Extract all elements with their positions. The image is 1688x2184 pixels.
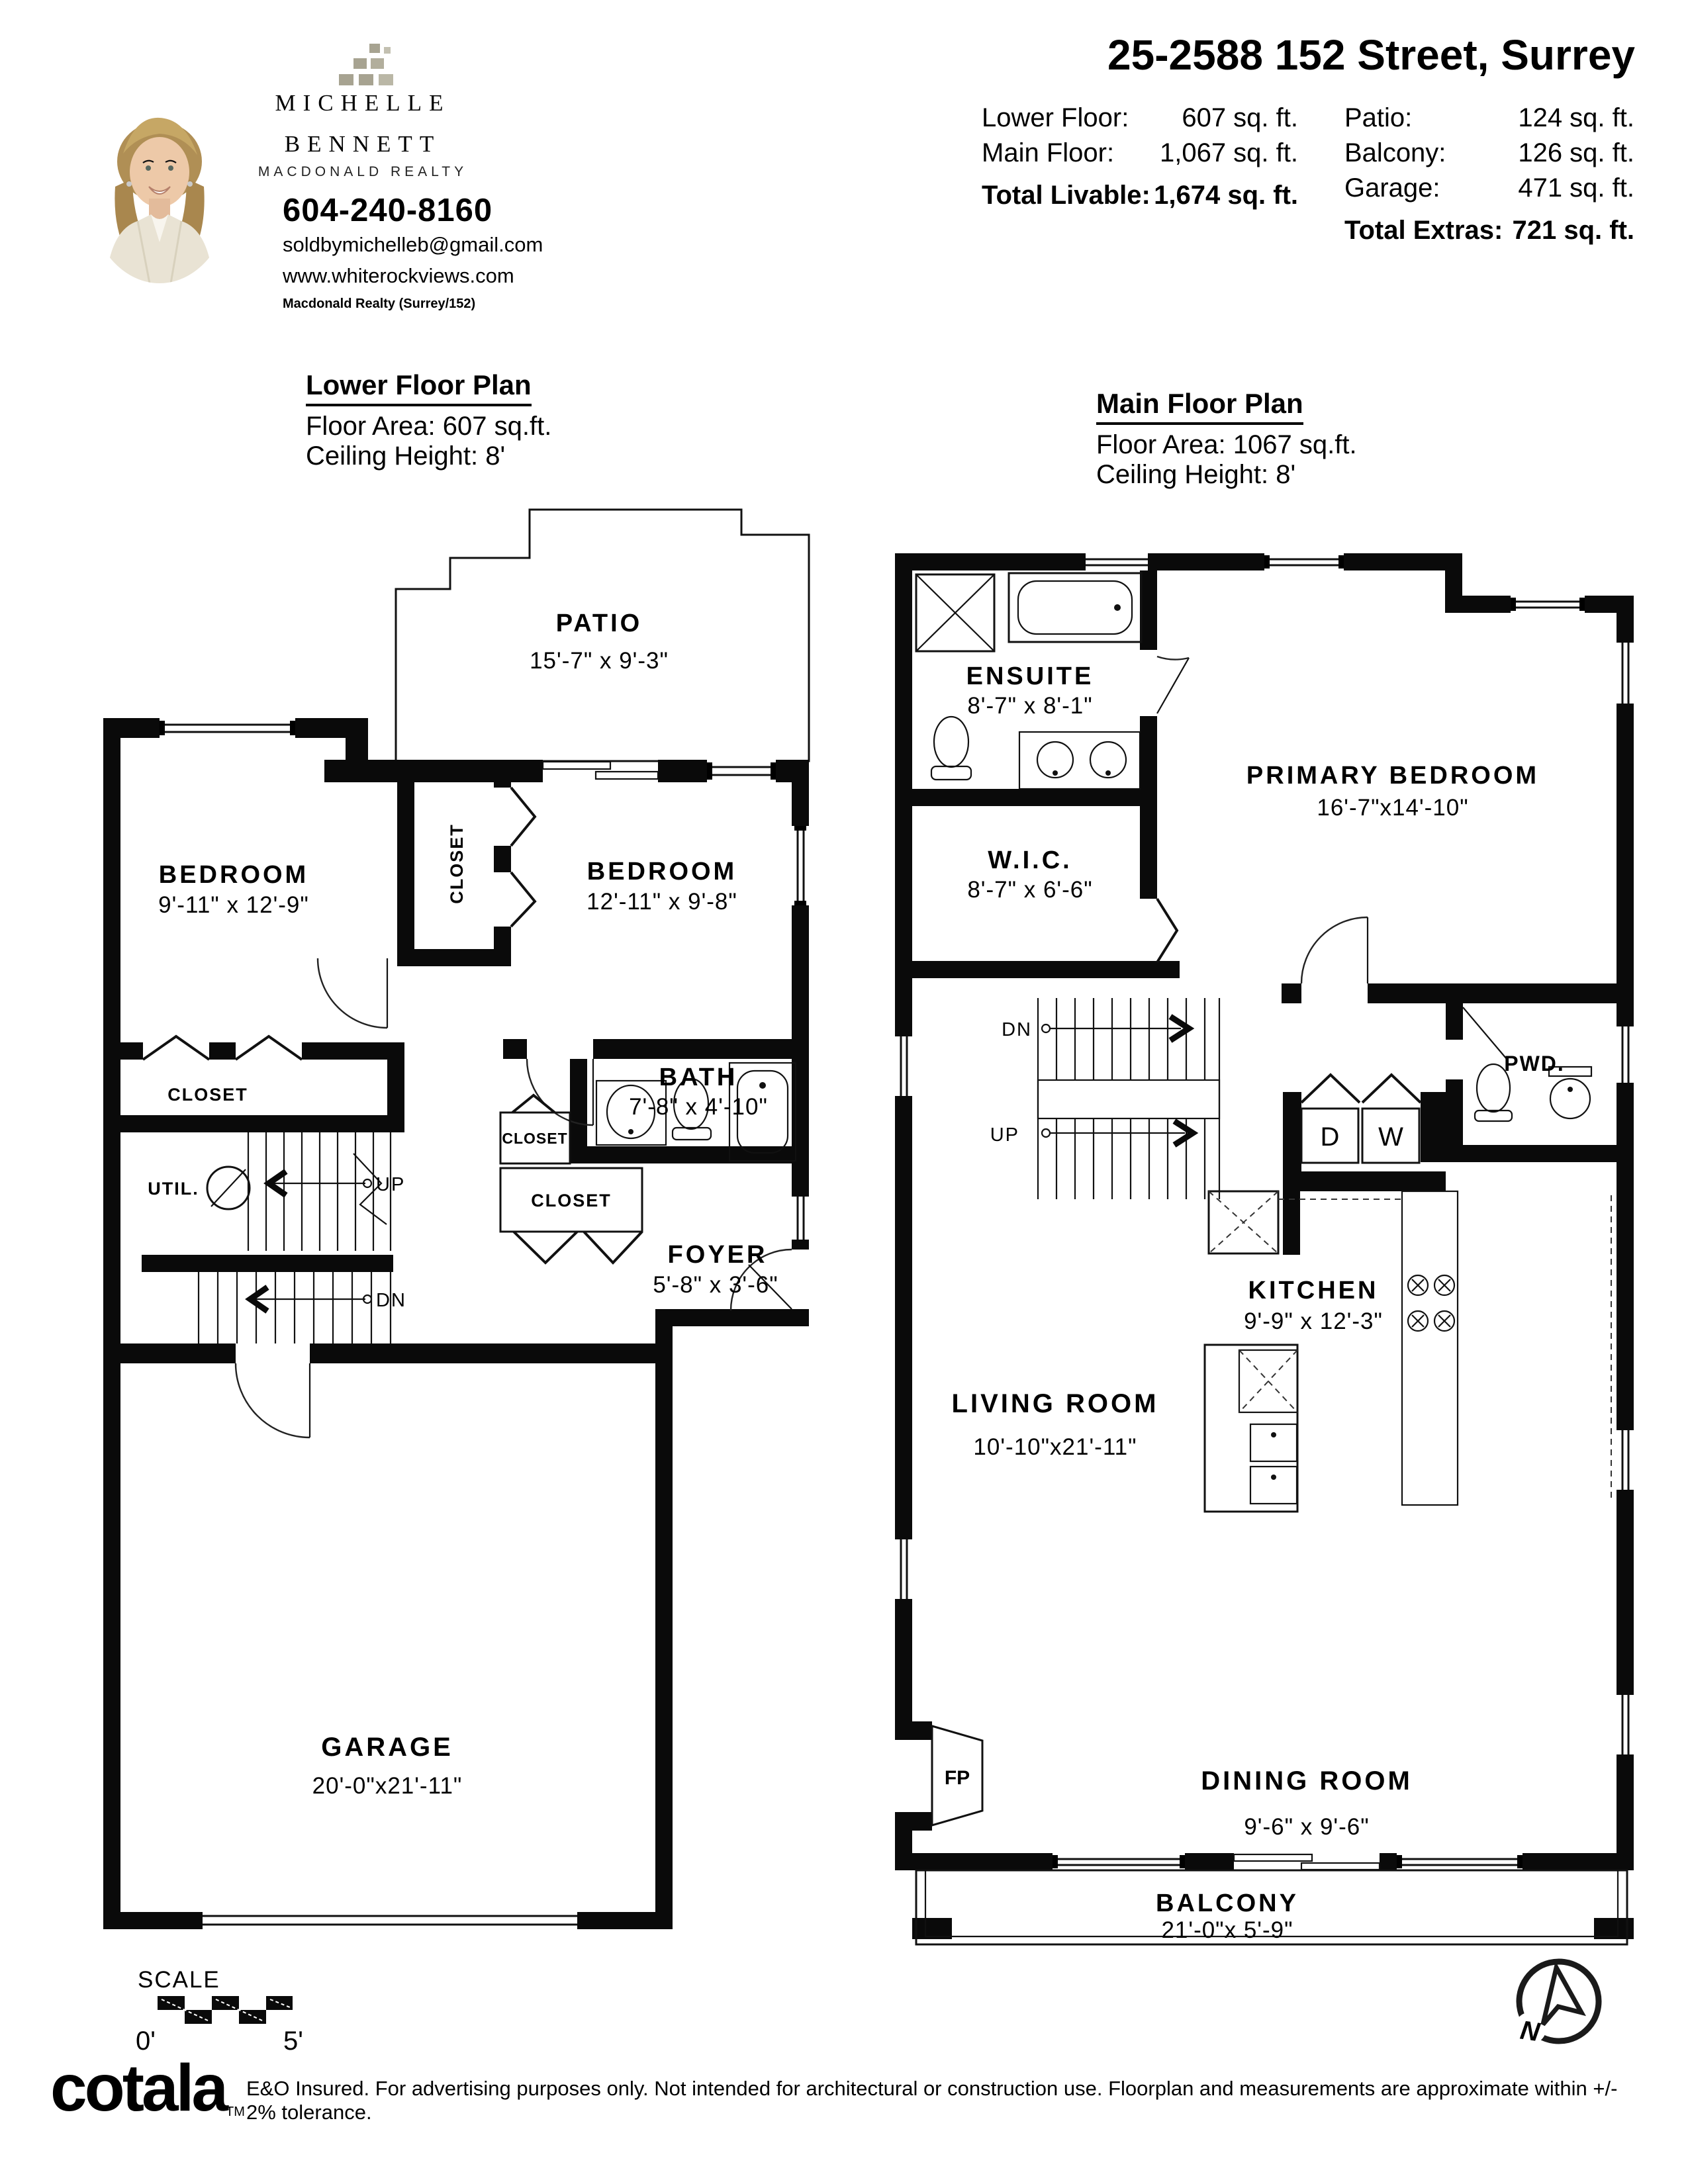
window [1617,1026,1634,1083]
main-plan-area: Floor Area: 1067 sq.ft. [1096,430,1357,460]
bifold-door-icon [236,1036,302,1060]
room-label-closet-wide: CLOSET [531,1191,612,1210]
closet-door-icon [1157,899,1177,962]
door-panel [1463,1007,1507,1059]
room-label-dining: DINING ROOM [1201,1766,1413,1796]
stat-row-total-livable: Total Livable: 1,674 sq. ft. [982,178,1298,213]
stats-livable: Lower Floor: 607 sq. ft. Main Floor: 1,0… [982,101,1298,213]
stat-label: Garage: [1344,171,1440,206]
room-dims-primary: 16'-7"x14'-10" [1317,795,1468,821]
room-label-wic: W.I.C. [988,846,1072,874]
bifold-door-icon [143,1036,209,1060]
room-label-closet-left: CLOSET [167,1085,248,1105]
room-label-bedroom-right: BEDROOM [587,858,737,886]
window [1086,553,1148,570]
garage-door-arc [236,1363,310,1437]
stat-row-patio: Patio: 124 sq. ft. [1344,101,1634,136]
stat-row-garage: Garage: 471 sq. ft. [1344,171,1634,206]
stat-label: Lower Floor: [982,101,1129,136]
room-dims-patio: 15'-7" x 9'-3" [530,648,669,674]
utility-fixture [207,1167,250,1209]
main-plan-heading: Main Floor Plan Floor Area: 1067 sq.ft. … [1096,388,1357,490]
fireplace: FP [932,1726,982,1825]
cotala-logo: cotalaTM [50,2050,245,2126]
door-arc [318,958,387,1028]
room-label-primary: PRIMARY BEDROOM [1246,762,1539,790]
main-plan-title: Main Floor Plan [1096,388,1303,425]
scale-five-label: 5' [283,2026,303,2056]
bifold-door-icon [1301,1075,1360,1103]
sink-icon [1550,1079,1590,1118]
agent-brokerage: MACDONALD REALTY [250,164,475,180]
closet-wide-box [500,1168,642,1263]
room-label-bedroom-left: BEDROOM [159,861,308,889]
lower-floor-plan-drawing: UP DN PAT [103,495,812,1931]
window [1617,643,1634,704]
door-arc [1301,917,1368,983]
floorplan-flyer: MICHELLE BENNETT MACDONALD REALTY 604-24… [0,0,1688,2184]
stat-row-lower-floor: Lower Floor: 607 sq. ft. [982,101,1298,136]
room-label-bath: BATH [659,1064,738,1091]
window [1397,1853,1523,1870]
room-dims-dining: 9'-6" x 9'-6" [1244,1814,1369,1840]
window [792,1197,809,1240]
room-dims-bath: 7'-8" x 4'-10" [629,1094,768,1120]
window [1511,596,1585,613]
room-label-util: UTIL. [148,1179,199,1199]
window [1617,1695,1634,1754]
agent-last-name: BENNETT [250,131,475,158]
agent-photo [97,87,222,283]
up-label: UP [990,1124,1019,1146]
room-label-ensuite: ENSUITE [966,662,1094,690]
room-label-patio: PATIO [556,610,642,637]
window [1053,1853,1185,1870]
sliding-door [1234,1854,1380,1870]
scale-bar [158,1996,293,2025]
room-dims-foyer: 5'-8" x 3'-6" [653,1272,778,1298]
room-label-balcony: BALCONY [1156,1889,1299,1917]
north-arrow-icon [1543,1967,1587,2030]
cotala-logo-tm: TM [226,2105,245,2119]
agent-phone: 604-240-8160 [283,192,492,229]
lower-plan-area: Floor Area: 607 sq.ft. [306,412,551,441]
room-label-kitchen: KITCHEN [1248,1277,1379,1304]
main-stairs: DN UP [990,998,1219,1199]
door-arc [1157,657,1189,659]
room-label-pwd: PWD. [1504,1052,1565,1075]
drawer [1250,1467,1297,1504]
up-label: UP [376,1174,405,1195]
stat-value: 471 sq. ft. [1518,171,1634,206]
stat-row-main-floor: Main Floor: 1,067 sq. ft. [982,136,1298,171]
main-plan-ceiling: Ceiling Height: 8' [1096,460,1357,490]
stat-label: Patio: [1344,101,1412,136]
stat-value: 1,674 sq. ft. [1154,178,1298,213]
room-label-living: LIVING ROOM [952,1389,1159,1418]
bifold-door-icon [511,872,535,927]
dn-label: DN [376,1290,406,1311]
stat-value: 721 sq. ft. [1512,213,1634,248]
stat-label: Total Livable: [982,178,1150,213]
window [895,1036,912,1096]
north-label: N [1519,2016,1542,2048]
stat-row-total-extras: Total Extras: 721 sq. ft. [1344,213,1634,248]
bifold-door-icon [511,788,535,846]
window [792,826,809,905]
toilet-icon [934,717,968,767]
room-label-closet-mid: CLOSET [447,823,467,904]
main-windows [895,553,1634,1870]
cotala-logo-text: cotala [50,2051,226,2125]
brand-logo-icon [335,44,401,90]
stove-burners-icon [1408,1275,1454,1331]
room-label-garage: GARAGE [321,1733,453,1762]
window [160,718,295,738]
washer-label: W [1378,1122,1403,1152]
stat-row-balcony: Balcony: 126 sq. ft. [1344,136,1634,171]
disclaimer-text: E&O Insured. For advertising purposes on… [246,2077,1650,2124]
agent-website: www.whiterockviews.com [283,264,514,288]
stat-label: Balcony: [1344,136,1446,171]
agent-office: Macdonald Realty (Surrey/152) [283,296,475,312]
lower-plan-heading: Lower Floor Plan Floor Area: 607 sq.ft. … [306,369,551,471]
room-dims-bedroom-left: 9'-11" x 12'-9" [158,892,309,918]
room-dims-wic: 8'-7" x 6'-6" [967,877,1092,903]
room-label-closet-small: CLOSET [502,1130,567,1147]
stat-value: 126 sq. ft. [1518,136,1634,171]
dn-label: DN [1002,1019,1032,1040]
room-dims-kitchen: 9'-9" x 12'-3" [1244,1308,1383,1334]
dryer-label: D [1321,1122,1340,1152]
room-dims-balcony: 21'-0"x 5'-9" [1161,1917,1293,1943]
window [707,760,776,782]
page-title: 25-2588 152 Street, Surrey [960,30,1635,79]
lower-plan-ceiling: Ceiling Height: 8' [306,441,551,471]
lower-plan-title: Lower Floor Plan [306,369,532,406]
room-dims-ensuite: 8'-7" x 8'-1" [967,693,1092,719]
agent-portrait-illustration [97,87,222,283]
stats-extras: Patio: 124 sq. ft. Balcony: 126 sq. ft. … [1344,101,1634,248]
lower-stairs: UP DN [199,1132,406,1343]
laundry-appliances: D W [1301,1109,1419,1163]
drawer [1250,1424,1297,1461]
stat-label: Total Extras: [1344,213,1503,248]
kitchen-fixtures [1205,1191,1611,1512]
window [1264,553,1344,570]
bifold-door-icon [1362,1075,1421,1103]
bifold-door-icon [584,1232,642,1263]
stat-value: 124 sq. ft. [1518,101,1634,136]
scale-label: SCALE [138,1967,220,1993]
counter [1402,1191,1458,1505]
room-dims-garage: 20'-0"x21'-11" [312,1773,463,1799]
toilet-tank [931,766,971,780]
sliding-door [543,762,658,779]
fp-label: FP [945,1767,970,1789]
door-panel [1157,658,1189,713]
room-dims-bedroom-right: 12'-11" x 9'-8" [586,889,737,915]
stat-label: Main Floor: [982,136,1114,171]
stat-value: 1,067 sq. ft. [1160,136,1298,171]
room-label-foyer: FOYER [668,1241,768,1269]
agent-email: soldbymichelleb@gmail.com [283,233,543,257]
garage-door [203,1916,577,1925]
north-compass: N [1508,1951,1610,2057]
room-dims-living: 10'-10"x21'-11" [973,1434,1137,1460]
bifold-door-icon [514,1232,577,1263]
window [895,1539,912,1599]
window [1617,1430,1634,1490]
main-floor-plan-drawing: DN UP [890,533,1651,1950]
stat-value: 607 sq. ft. [1182,101,1298,136]
agent-first-name: MICHELLE [250,90,475,116]
bifold-door-icon [512,1095,555,1113]
